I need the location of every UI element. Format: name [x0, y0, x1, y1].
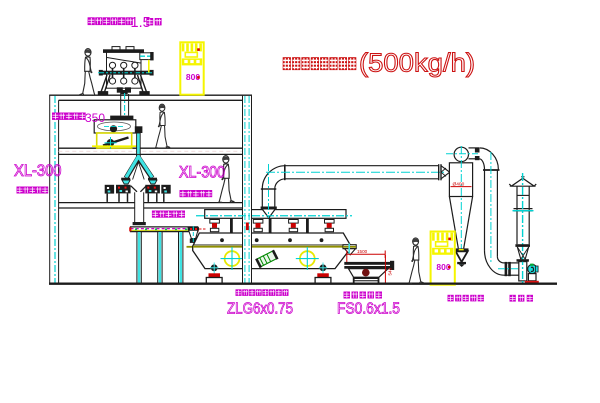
svg-text:XL-300: XL-300 [179, 164, 225, 182]
svg-text:1500: 1500 [357, 249, 368, 254]
svg-text:FS0.6x1.5: FS0.6x1.5 [337, 301, 400, 318]
svg-text:548: 548 [388, 267, 393, 275]
svg-text:Ø400: Ø400 [453, 182, 465, 188]
svg-text:(500kg/h): (500kg/h) [359, 48, 475, 78]
svg-text:350: 350 [85, 111, 105, 125]
svg-text:XL-300: XL-300 [14, 162, 62, 180]
svg-text:ZLG6x0.75: ZLG6x0.75 [227, 301, 293, 318]
